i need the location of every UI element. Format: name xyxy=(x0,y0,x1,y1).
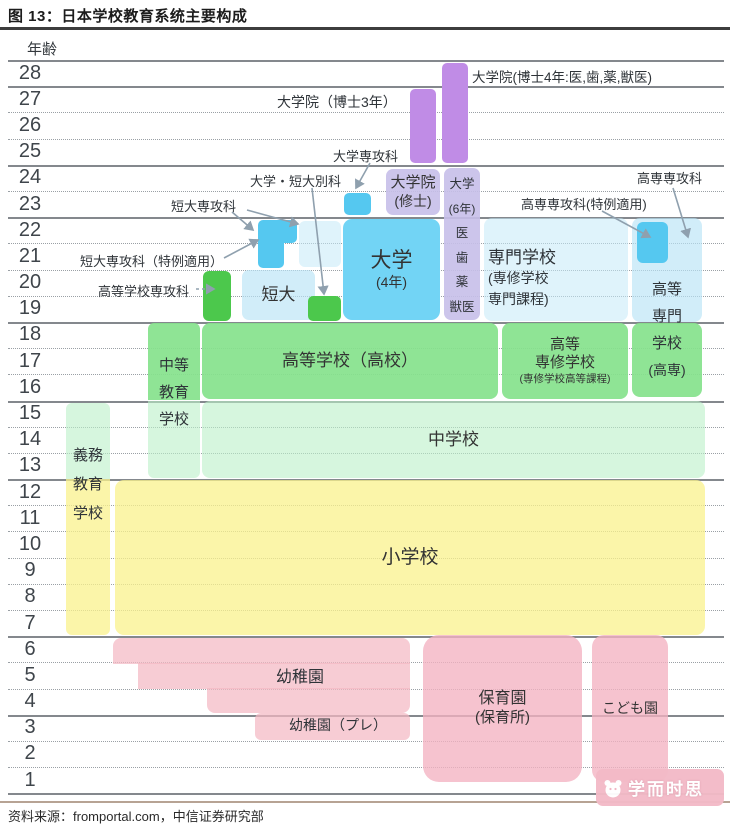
label-gimu-kyoiku-line: 義務 xyxy=(66,441,110,470)
block-shogakko: 小学校 xyxy=(115,480,705,635)
label-koko-senkoka: 高等学校専攻科 xyxy=(98,281,189,300)
block-chugakko: 中学校 xyxy=(202,401,705,478)
age-tick-10: 10 xyxy=(11,531,49,557)
age-row-line xyxy=(8,86,724,88)
block-yochien-row6 xyxy=(113,638,410,664)
age-tick-5: 5 xyxy=(11,662,49,688)
label-senmon-gakko-line: (専修学校 xyxy=(488,268,556,289)
age-axis-label: 年齢 xyxy=(27,38,57,59)
block-kosen-senkoka xyxy=(637,222,668,263)
age-row-line xyxy=(8,165,724,167)
age-row-line xyxy=(8,191,724,192)
age-tick-19: 19 xyxy=(11,296,49,322)
block-koto-senshu-label: (専修学校高等課程) xyxy=(520,373,611,386)
figure-title: 图 13：日本学校教育系统主要构成 xyxy=(8,5,247,26)
label-senmon-gakko: 専門学校(専修学校専門課程) xyxy=(488,247,556,310)
label-univ-6yr-line: (6年) xyxy=(444,197,480,222)
age-tick-11: 11 xyxy=(11,505,49,531)
label-yochien-pre: 幼稚園（プレ） xyxy=(262,715,414,735)
block-univ-4yr-label: (4年) xyxy=(376,274,407,292)
age-tick-22: 22 xyxy=(11,217,49,243)
block-bekka-green xyxy=(308,296,341,321)
block-hoikuen-label: (保育所) xyxy=(475,709,530,728)
watermark-logo-icon xyxy=(602,777,624,799)
label-univ-6yr-line: 医 xyxy=(444,221,480,246)
age-tick-18: 18 xyxy=(11,322,49,348)
age-tick-6: 6 xyxy=(11,636,49,662)
age-tick-26: 26 xyxy=(11,112,49,138)
age-tick-28: 28 xyxy=(11,60,49,86)
age-tick-8: 8 xyxy=(11,584,49,610)
block-koto-senshu: 高等専修学校(専修学校高等課程) xyxy=(502,323,628,399)
block-univ-haze xyxy=(299,221,341,267)
block-tandai: 短大 xyxy=(242,270,315,320)
block-chugakko-label: 中学校 xyxy=(428,429,479,450)
figure-japan-education-system: 图 13：日本学校教育系统主要构成 年齢 2827262524232221201… xyxy=(0,0,730,827)
age-tick-15: 15 xyxy=(11,401,49,427)
age-tick-20: 20 xyxy=(11,270,49,296)
age-tick-3: 3 xyxy=(11,715,49,741)
label-univ-6yr-line: 薬 xyxy=(444,270,480,295)
watermark-text: 学而时思 xyxy=(628,775,704,800)
age-tick-25: 25 xyxy=(11,139,49,165)
block-doctoral-3yr xyxy=(410,89,436,163)
block-kodomoen: こども園 xyxy=(592,635,668,782)
label-univ-6yr: 大学(6年)医歯薬獣医 xyxy=(444,172,480,319)
source-note: 资料来源：fromportal.com，中信证券研究部 xyxy=(8,806,264,825)
block-kodomoen-label: こども園 xyxy=(602,700,658,718)
label-doctoral-3yr: 大学院（博士3年） xyxy=(277,92,397,112)
label-kosen-senkoka: 高専専攻科 xyxy=(637,168,702,187)
age-tick-21: 21 xyxy=(11,243,49,269)
age-tick-27: 27 xyxy=(11,86,49,112)
block-grad-master-label: (修士) xyxy=(394,193,431,211)
age-tick-1: 1 xyxy=(11,767,49,793)
age-tick-4: 4 xyxy=(11,689,49,715)
age-tick-12: 12 xyxy=(11,479,49,505)
block-doctoral-4yr xyxy=(442,63,468,163)
block-univ-senkoka xyxy=(344,193,371,215)
block-tandai-senkoka-lower xyxy=(258,242,284,268)
watermark: 学而时思 xyxy=(596,769,724,806)
label-univ-6yr-line: 獣医 xyxy=(444,295,480,320)
age-tick-9: 9 xyxy=(11,558,49,584)
label-univ-6yr-line: 大学 xyxy=(444,172,480,197)
age-row-line xyxy=(8,112,724,113)
block-shogakko-label: 小学校 xyxy=(381,546,438,570)
label-gimu-kyoiku-line: 教育 xyxy=(66,470,110,499)
label-univ-6yr-line: 歯 xyxy=(444,246,480,271)
block-hoikuen-label: 保育園 xyxy=(478,689,526,709)
label-doctoral-4yr: 大学院(博士4年:医,歯,薬,獣医) xyxy=(472,66,652,86)
block-grad-master-label: 大学院 xyxy=(390,174,435,193)
block-tandai-label: 短大 xyxy=(262,284,296,305)
label-kosen-line: 専門 xyxy=(632,303,702,330)
label-yochien: 幼稚園 xyxy=(230,663,370,687)
block-koko-senkoka-green xyxy=(203,271,231,321)
age-tick-13: 13 xyxy=(11,453,49,479)
label-gimu-kyoiku: 義務教育学校 xyxy=(66,441,110,528)
label-tandai-senkoka: 短大専攻科 xyxy=(171,196,236,215)
label-kosen: 高等専門学校(高専) xyxy=(632,276,702,384)
block-univ-4yr: 大学(4年) xyxy=(343,219,440,320)
label-univ-tandai-bekka: 大学・短大別科 xyxy=(250,171,341,190)
block-koto-senshu-label: 専修学校 xyxy=(535,354,595,373)
block-koko: 高等学校（高校） xyxy=(202,323,498,399)
age-tick-17: 17 xyxy=(11,348,49,374)
label-gimu-kyoiku-line: 学校 xyxy=(66,499,110,528)
age-tick-2: 2 xyxy=(11,741,49,767)
label-senmon-gakko-line: 専門学校 xyxy=(488,247,556,268)
block-hoikuen: 保育園(保育所) xyxy=(423,635,582,782)
label-chuto-kyoiku-line: 学校 xyxy=(148,406,200,433)
label-chuto-kyoiku-line: 教育 xyxy=(148,379,200,406)
label-kosen-line: (高専) xyxy=(632,357,702,384)
block-koko-label: 高等学校（高校） xyxy=(282,350,418,371)
age-tick-16: 16 xyxy=(11,374,49,400)
label-kosen-line: 学校 xyxy=(632,330,702,357)
label-chuto-kyoiku: 中等教育学校 xyxy=(148,352,200,433)
age-row-line xyxy=(8,139,724,140)
label-senmon-gakko-line: 専門課程) xyxy=(488,289,556,310)
title-divider xyxy=(0,27,730,30)
block-univ-4yr-label: 大学 xyxy=(371,248,413,274)
block-yochien-row4 xyxy=(207,688,410,713)
label-tandai-tokurei: 短大専攻科（特例適用） xyxy=(80,251,223,270)
age-tick-23: 23 xyxy=(11,191,49,217)
block-koto-senshu-label: 高等 xyxy=(550,336,580,355)
age-tick-7: 7 xyxy=(11,610,49,636)
label-chuto-kyoiku-line: 中等 xyxy=(148,352,200,379)
block-grad-master: 大学院(修士) xyxy=(386,169,440,215)
block-tandai-senkoka-upper xyxy=(258,220,297,243)
label-univ-senkoka: 大学専攻科 xyxy=(333,146,398,165)
age-tick-14: 14 xyxy=(11,427,49,453)
label-kosen-line: 高等 xyxy=(632,276,702,303)
age-tick-24: 24 xyxy=(11,165,49,191)
label-kosen-tokurei: 高専専攻科(特例適用) xyxy=(521,194,647,213)
age-row-line xyxy=(8,60,724,62)
